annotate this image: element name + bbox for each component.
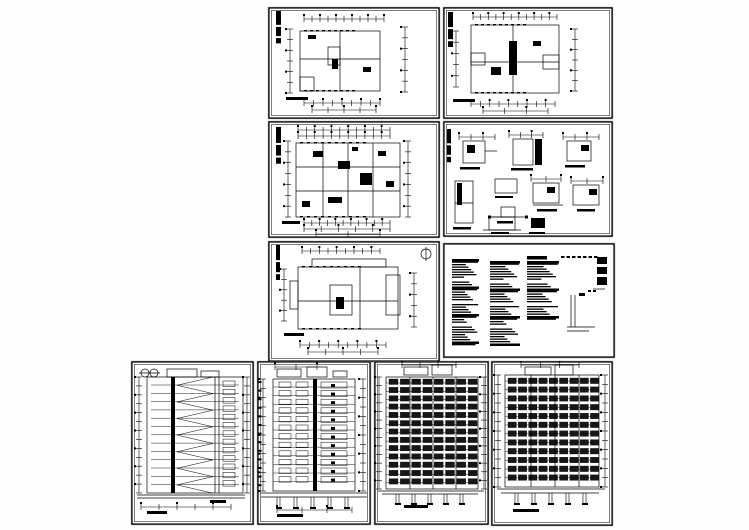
sheet-front-elevation bbox=[374, 361, 489, 525]
construction-details-sheet-drawing bbox=[443, 121, 613, 237]
floor-plan-sheet-1-drawing bbox=[268, 7, 440, 119]
cad-drawing-collage bbox=[0, 0, 749, 530]
sheet-floor-plan-1 bbox=[268, 7, 440, 119]
front-elevation-sheet-drawing bbox=[374, 361, 489, 525]
sheet-details bbox=[443, 121, 613, 237]
building-section-sheet-2-drawing bbox=[257, 361, 371, 525]
sheet-floor-plan-2 bbox=[443, 7, 613, 119]
sheet-section-2 bbox=[257, 361, 371, 525]
rear-elevation-sheet-drawing bbox=[491, 361, 613, 526]
building-section-sheet-drawing bbox=[131, 361, 254, 525]
roof-plan-sheet-drawing bbox=[268, 241, 440, 362]
general-notes-sheet-drawing bbox=[443, 243, 615, 358]
sheet-rear-elevation bbox=[491, 361, 613, 526]
floor-plan-sheet-3-drawing bbox=[268, 121, 440, 238]
sheet-roof-plan bbox=[268, 241, 440, 362]
sheet-floor-plan-3 bbox=[268, 121, 440, 238]
floor-plan-sheet-2-drawing bbox=[443, 7, 613, 119]
sheet-general-notes bbox=[443, 243, 615, 358]
sheet-section-stairs bbox=[131, 361, 254, 525]
